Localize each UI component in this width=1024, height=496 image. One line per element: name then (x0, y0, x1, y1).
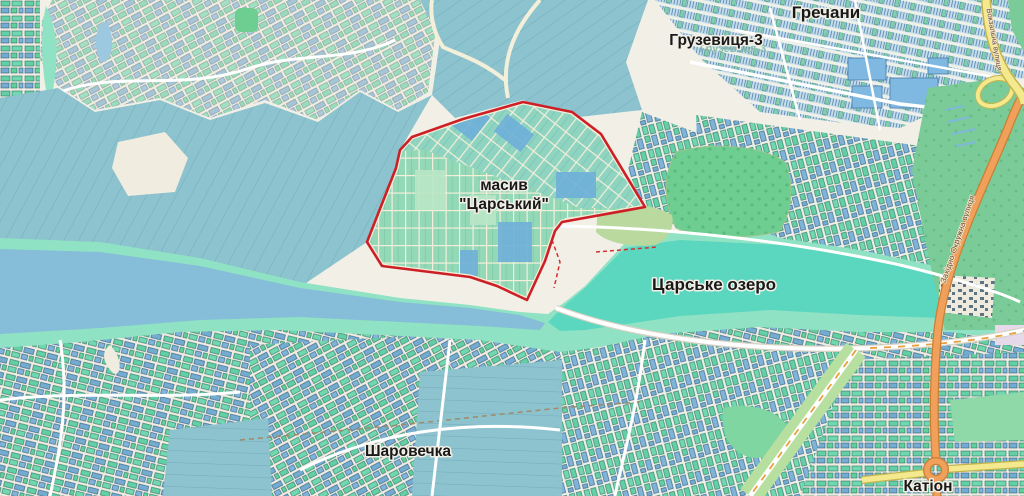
label-masyv-line1: масив (480, 177, 528, 194)
label-hruzevytsia: Грузевиця-3 (669, 32, 763, 49)
map-svg[interactable]: Грузевиця-3 Гречани Грузевиця-3 масив "Ц… (0, 0, 1024, 496)
label-grechany: Гречани (792, 3, 860, 22)
green-blob-north (235, 8, 258, 32)
map-canvas[interactable]: Грузевиця-3 Гречани Грузевиця-3 масив "Ц… (0, 0, 1024, 496)
green-southeast (950, 392, 1024, 442)
label-lake: Царське озеро (652, 275, 776, 294)
fields-north (420, 0, 648, 118)
label-masyv-line2: "Царський" (459, 196, 549, 213)
label-kation: Катіон (904, 478, 953, 495)
label-sharovechka: Шаровечка (365, 443, 451, 460)
forest-patch-east (666, 146, 791, 237)
